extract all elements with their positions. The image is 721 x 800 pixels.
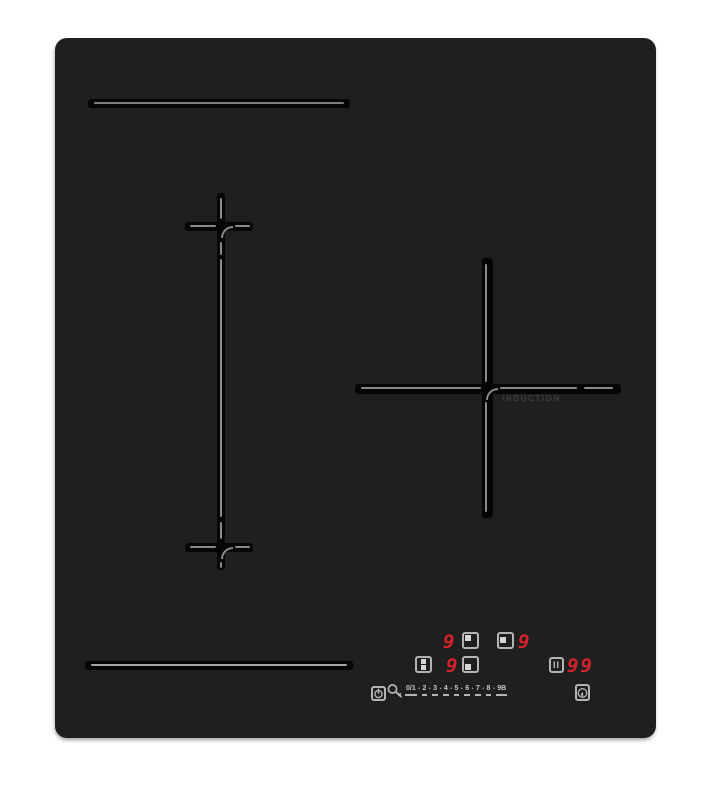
flex-zone-top-groove — [88, 99, 350, 108]
groove-inlay-line — [91, 664, 347, 666]
zone-position-notch — [465, 635, 471, 641]
timer-key[interactable] — [575, 684, 590, 701]
slider-level[interactable]: 7 — [475, 685, 481, 696]
slider-level[interactable]: 8 — [486, 685, 492, 696]
groove-inlay-line — [94, 102, 344, 104]
slider-dot: • — [418, 685, 420, 693]
power-key[interactable] — [371, 686, 386, 701]
zone-right-key[interactable] — [497, 632, 514, 649]
marking-line — [220, 562, 222, 568]
marking-line — [485, 402, 487, 512]
right-power-display: 9 — [518, 634, 531, 650]
cooktop-surface: INDUCTION 9 9 9 II 99 — [55, 38, 656, 738]
power-icon — [373, 688, 384, 699]
marking-line — [220, 522, 222, 539]
bridge-lower-notch — [421, 665, 426, 670]
zone-rear-left-key[interactable] — [462, 632, 479, 649]
pause-key[interactable]: II — [549, 657, 564, 673]
marking-line — [361, 387, 481, 389]
slider-level[interactable]: 0/1 — [405, 685, 417, 696]
front-left-power-display: 9 — [446, 658, 459, 674]
power-slider[interactable]: 0/1 • 2 • 3 • 4 • 5 • 6 • 7 • 8 • 9B — [405, 685, 551, 696]
marking-line — [235, 225, 250, 227]
slider-level[interactable]: 2 — [422, 685, 428, 696]
zone-position-notch — [465, 664, 471, 670]
slider-level[interactable]: 9B — [496, 685, 507, 696]
timer-display: 99 — [567, 658, 594, 674]
marking-line — [220, 242, 222, 255]
slider-dot: • — [461, 685, 463, 693]
zone-front-left-key[interactable] — [462, 656, 479, 673]
slider-dot: • — [450, 685, 452, 693]
key-lock-key[interactable] — [386, 683, 404, 701]
slider-level[interactable]: 3 — [432, 685, 438, 696]
marking-line — [190, 546, 216, 548]
bridge-upper-notch — [421, 659, 426, 664]
clock-icon — [577, 687, 588, 699]
slider-dot: • — [482, 685, 484, 693]
zone-position-notch — [500, 637, 506, 643]
slider-dot: • — [472, 685, 474, 693]
slider-level[interactable]: 4 — [443, 685, 449, 696]
slider-dot: • — [429, 685, 431, 693]
cross-vertical-arm — [482, 258, 493, 518]
key-lock-icon — [388, 685, 401, 697]
marking-line — [220, 198, 222, 219]
slider-dot: • — [493, 685, 495, 693]
marking-line — [220, 259, 222, 517]
marking-line — [500, 387, 577, 389]
bridge-zones-key[interactable] — [415, 656, 432, 673]
marking-line — [485, 264, 487, 382]
marking-line — [235, 546, 250, 548]
flex-zone-bottom-groove — [85, 661, 353, 670]
slider-dot: • — [440, 685, 442, 693]
slider-level[interactable]: 6 — [464, 685, 470, 696]
marking-line — [190, 225, 216, 227]
rear-left-power-display: 9 — [443, 634, 456, 650]
marking-line — [584, 387, 613, 389]
induction-zone-label: INDUCTION — [502, 394, 561, 403]
slider-level[interactable]: 5 — [454, 685, 460, 696]
